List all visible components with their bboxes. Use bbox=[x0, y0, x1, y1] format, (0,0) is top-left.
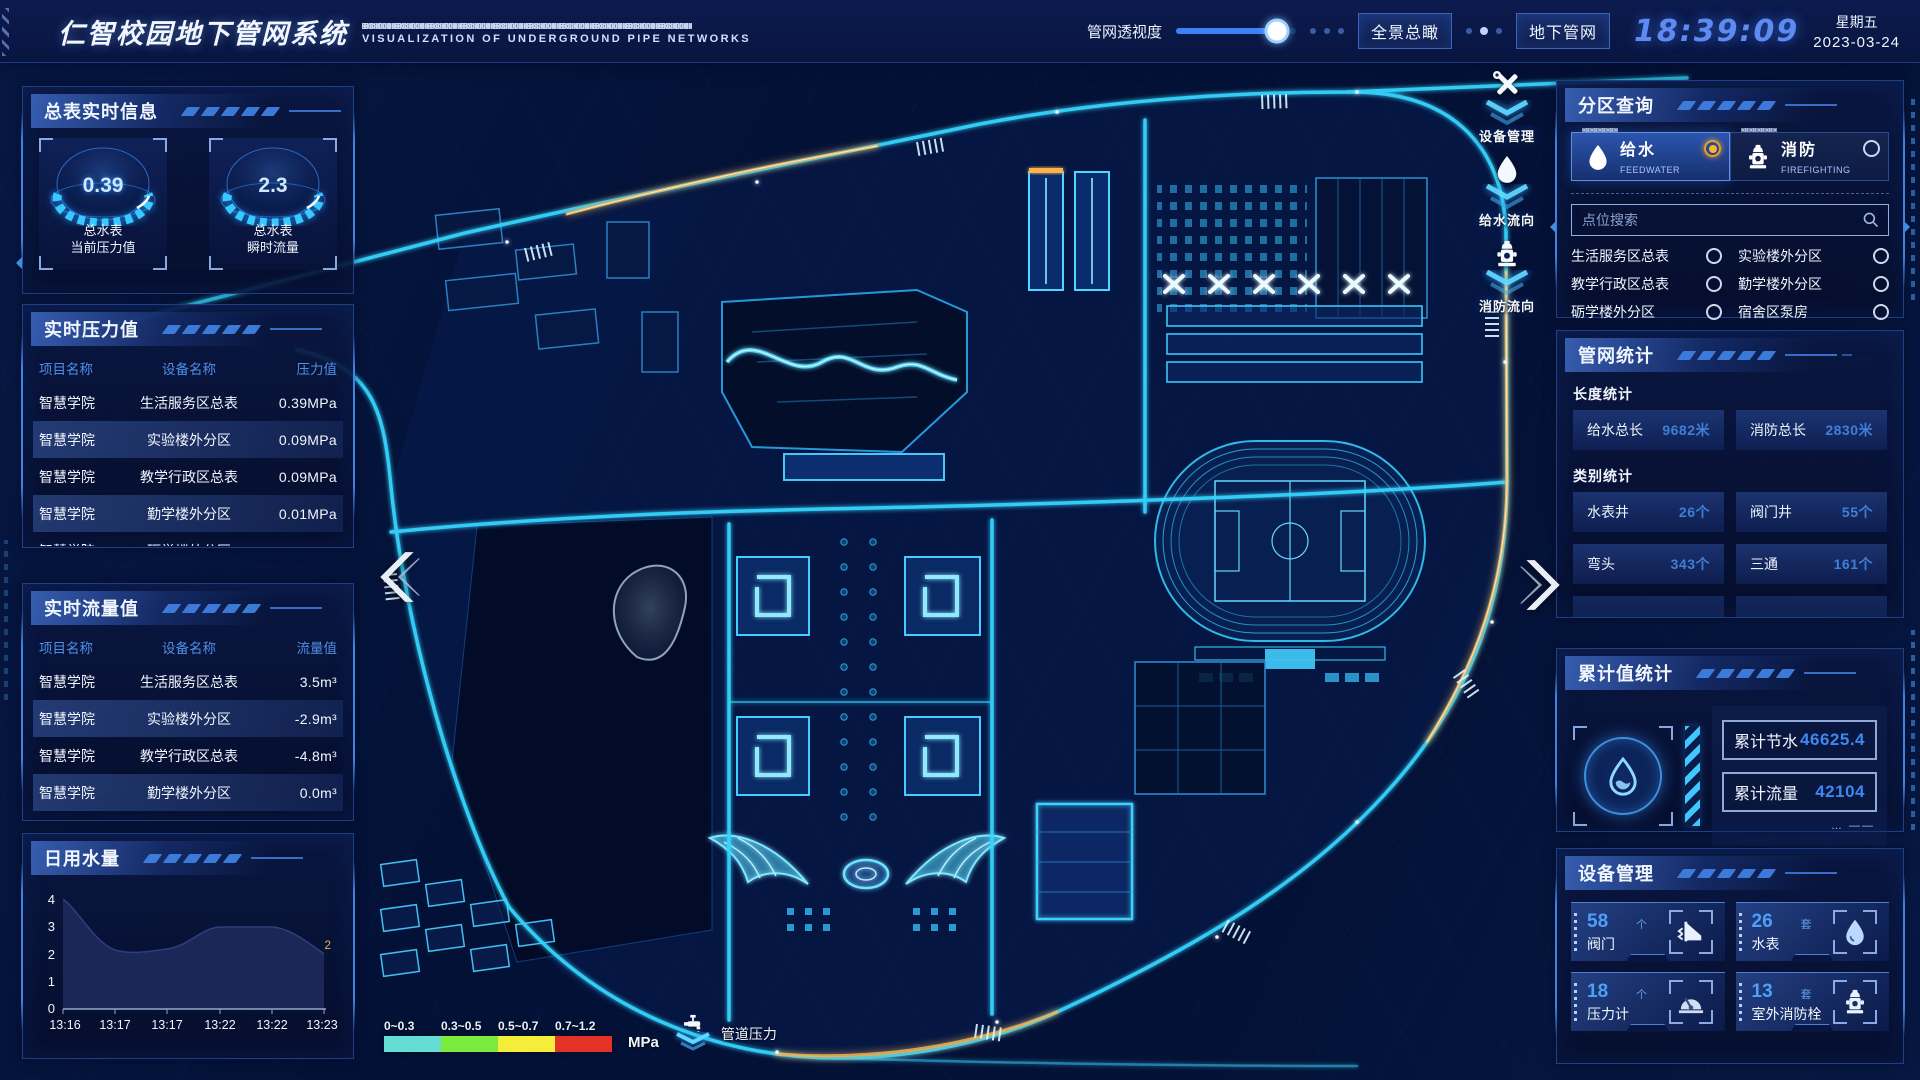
search-icon[interactable] bbox=[1862, 211, 1880, 229]
transparency-label: 管网透视度 bbox=[1087, 21, 1162, 42]
legend-unit: MPa bbox=[628, 1034, 659, 1051]
water-drop-icon bbox=[1606, 756, 1640, 796]
list-item[interactable]: 砺学楼外分区 bbox=[1571, 298, 1722, 320]
stat-box: 水表井26个 bbox=[1573, 492, 1724, 532]
tools-icon bbox=[1490, 70, 1524, 100]
app-subtitle: VISUALIZATION OF UNDERGROUND PIPE NETWOR… bbox=[362, 33, 751, 45]
daily-usage-panel: 日用水量 43 21 0 13:1613:17 13:1713:22 13:22… bbox=[22, 833, 354, 1059]
list-item[interactable]: 宿舍区泵房 bbox=[1738, 298, 1889, 320]
cumulative-stats-panel: 累计值统计 累计节水46625.4 累计流量42104 … —— bbox=[1556, 648, 1904, 832]
stat-box: 累计流量42104 bbox=[1722, 772, 1877, 812]
gauge-value: 0.39 bbox=[83, 174, 124, 197]
item-radio[interactable] bbox=[1873, 276, 1889, 292]
stat-box-clipped bbox=[1573, 596, 1724, 618]
pressure-table-panel: 实时压力值 项目名称设备名称压力值 智慧学院生活服务区总表0.39MPa 智慧学… bbox=[22, 304, 354, 548]
tab-feedwater[interactable]: 给水 FEEDWATER bbox=[1571, 132, 1730, 181]
table-header: 项目名称设备名称压力值 bbox=[33, 350, 343, 384]
edge-decoration bbox=[1911, 630, 1915, 830]
dots-decoration bbox=[1466, 27, 1502, 35]
item-radio[interactable] bbox=[1873, 304, 1889, 320]
edge-decoration bbox=[1911, 95, 1915, 300]
search-input[interactable] bbox=[1580, 211, 1862, 229]
tab-firefighting[interactable]: 消防 FIREFIGHTING bbox=[1730, 132, 1889, 181]
slider-thumb[interactable] bbox=[1264, 19, 1289, 44]
panel-title: 管网统计 bbox=[1565, 342, 1654, 368]
svg-text:1: 1 bbox=[48, 974, 55, 989]
table-row: 智慧学院实验楼外分区-2.9m³ bbox=[33, 700, 343, 737]
list-item[interactable]: 实验楼外分区 bbox=[1738, 242, 1889, 270]
chevron-down-icon bbox=[1481, 100, 1533, 126]
legend-range: 0.7~1.2 bbox=[555, 1019, 612, 1033]
hydrant-icon bbox=[1833, 980, 1877, 1024]
overlay-button-label: 设备管理 bbox=[1479, 126, 1535, 145]
legend-range: 0.3~0.5 bbox=[441, 1019, 498, 1033]
app-title: 仁智校园地下管网系统 bbox=[58, 12, 348, 51]
gauge-card-pressure: 0.39 总水表当前压力值 bbox=[39, 138, 167, 270]
water-drop-icon bbox=[1586, 143, 1610, 171]
header: 仁智校园地下管网系统 VISUALIZATION OF UNDERGROUND … bbox=[0, 0, 1920, 63]
clock-date: 2023-03-24 bbox=[1813, 34, 1900, 51]
item-radio[interactable] bbox=[1706, 248, 1722, 264]
chart-end-label: 2 bbox=[324, 938, 331, 952]
pressure-gauge-icon bbox=[1669, 980, 1713, 1024]
panel-title: 累计值统计 bbox=[1565, 660, 1673, 686]
stat-box: 三通161个 bbox=[1736, 544, 1887, 584]
feedwater-flow-button[interactable]: 给水流向 bbox=[1464, 154, 1550, 229]
tab-sublabel: FIREFIGHTING bbox=[1781, 165, 1851, 175]
dots-decoration: … —— bbox=[1831, 820, 1875, 832]
app-subtitle-block: VISUALIZATION OF UNDERGROUND PIPE NETWOR… bbox=[362, 23, 751, 45]
list-item[interactable]: 勤学楼外分区 bbox=[1738, 270, 1889, 298]
gauge-label: 总水表瞬时流量 bbox=[247, 222, 299, 256]
zone-list: 生活服务区总表 实验楼外分区 教学行政区总表 勤学楼外分区 砺学楼外分区 宿舍区… bbox=[1571, 242, 1889, 320]
table-row: 智慧学院生活服务区总表0.39MPa bbox=[33, 384, 343, 421]
stripe-divider bbox=[1685, 726, 1700, 826]
svg-text:4: 4 bbox=[48, 892, 55, 907]
meter-info-panel: 总表实时信息 0.39 总水表当前压力值 2.3 bbox=[22, 86, 354, 294]
table-row: 智慧学院教学行政区总表-4.8m³ bbox=[33, 737, 343, 774]
table-row: 智慧学院勤学楼外分区0.01MPa bbox=[33, 495, 343, 532]
clock: 18:39:09 星期五 2023-03-24 bbox=[1634, 12, 1900, 51]
svg-text:13:17: 13:17 bbox=[151, 1018, 182, 1032]
chevron-down-icon bbox=[1481, 270, 1533, 296]
table-row: 智慧学院教学行政区总表0.09MPa bbox=[33, 458, 343, 495]
clock-time: 18:39:09 bbox=[1634, 14, 1799, 49]
map-overlay-buttons: 设备管理 给水流向 消防流向 bbox=[1464, 70, 1550, 315]
svg-text:13:16: 13:16 bbox=[49, 1018, 80, 1032]
legend-range: 0.5~0.7 bbox=[498, 1019, 555, 1033]
underground-pipes-button[interactable]: 地下管网 bbox=[1516, 13, 1610, 49]
legend-range: 0~0.3 bbox=[384, 1019, 441, 1033]
panel-title: 实时压力值 bbox=[31, 316, 139, 342]
water-saving-icon-card bbox=[1573, 726, 1673, 826]
section-label: 类别统计 bbox=[1573, 466, 1887, 486]
table-row: 智慧学院勤学楼外分区0.0m³ bbox=[33, 774, 343, 811]
flow-table-panel: 实时流量值 项目名称设备名称流量值 智慧学院生活服务区总表3.5m³ 智慧学院实… bbox=[22, 583, 354, 821]
edge-decoration bbox=[4, 540, 8, 700]
overview-button[interactable]: 全景总瞰 bbox=[1358, 13, 1452, 49]
tab-radio[interactable] bbox=[1704, 140, 1721, 157]
tab-radio[interactable] bbox=[1863, 140, 1880, 157]
faucet-icon bbox=[682, 1014, 704, 1032]
gauge-label: 总水表当前压力值 bbox=[70, 222, 135, 256]
water-drop-icon bbox=[1494, 154, 1520, 184]
map-prev-arrow[interactable] bbox=[372, 548, 420, 606]
network-stats-panel: 管网统计 长度统计 给水总长9682米 消防总长2830米 类别统计 水表井26… bbox=[1556, 330, 1904, 618]
transparency-slider[interactable] bbox=[1176, 28, 1296, 34]
section-label: 长度统计 bbox=[1573, 384, 1887, 404]
svg-text:13:22: 13:22 bbox=[256, 1018, 287, 1032]
table-row: 智慧学院实验楼外分区0.09MPa bbox=[33, 421, 343, 458]
water-drop-icon bbox=[1833, 910, 1877, 954]
chevron-down-icon bbox=[1481, 184, 1533, 210]
svg-text:3: 3 bbox=[48, 919, 55, 934]
table-row: 智慧学院生活服务区总表3.5m³ bbox=[33, 663, 343, 700]
daily-usage-chart: 43 21 0 13:1613:17 13:1713:22 13:2213:23… bbox=[29, 881, 341, 1043]
legend-pressure-label: 管道压力 bbox=[721, 1024, 777, 1044]
svg-text:13:17: 13:17 bbox=[99, 1018, 130, 1032]
device-card-hydrants: 13室外消防栓 套 bbox=[1736, 972, 1890, 1031]
item-radio[interactable] bbox=[1873, 248, 1889, 264]
device-manage-map-button[interactable]: 设备管理 bbox=[1464, 70, 1550, 145]
hydrant-icon bbox=[1745, 143, 1771, 171]
header-hazard-decoration bbox=[2, 8, 9, 56]
panel-title: 总表实时信息 bbox=[31, 98, 158, 124]
table-row: 智慧学院砺学楼外分区2.3m³ bbox=[33, 811, 343, 819]
svg-text:2: 2 bbox=[48, 947, 55, 962]
table-header: 项目名称设备名称流量值 bbox=[33, 629, 343, 663]
pressure-legend: 0~0.3 0.3~0.5 0.5~0.7 0.7~1.2 MPa 管道压力 bbox=[384, 1014, 777, 1052]
stat-box-clipped bbox=[1736, 596, 1887, 618]
panel-title: 设备管理 bbox=[1565, 860, 1654, 886]
tab-sublabel: FEEDWATER bbox=[1620, 165, 1680, 175]
dots-decoration bbox=[1310, 28, 1344, 34]
device-card-pressure-gauges: 18压力计 个 bbox=[1571, 972, 1725, 1031]
svg-text:0: 0 bbox=[48, 1001, 55, 1016]
valve-icon bbox=[1669, 910, 1713, 954]
clock-weekday: 星期五 bbox=[1836, 12, 1878, 32]
zone-query-panel: 分区查询 给水 FEEDWATER 消防 FIREFIGHTING 生活服务区总… bbox=[1556, 80, 1904, 318]
overlay-button-label: 给水流向 bbox=[1479, 210, 1535, 229]
stat-box: 给水总长9682米 bbox=[1573, 410, 1724, 450]
gauge-value: 2.3 bbox=[258, 174, 287, 197]
svg-text:13:23: 13:23 bbox=[306, 1018, 337, 1032]
item-radio[interactable] bbox=[1706, 304, 1722, 320]
stat-box: 弯头343个 bbox=[1573, 544, 1724, 584]
gauge-card-flow: 2.3 总水表瞬时流量 bbox=[209, 138, 337, 270]
hydrant-icon bbox=[1493, 238, 1521, 270]
fire-flow-button[interactable]: 消防流向 bbox=[1464, 238, 1550, 315]
table-body: 智慧学院生活服务区总表0.39MPa 智慧学院实验楼外分区0.09MPa 智慧学… bbox=[33, 384, 343, 546]
stat-box: 阀门井55个 bbox=[1736, 492, 1887, 532]
overlay-button-label: 消防流向 bbox=[1479, 296, 1535, 315]
item-radio[interactable] bbox=[1706, 276, 1722, 292]
table-body: 智慧学院生活服务区总表3.5m³ 智慧学院实验楼外分区-2.9m³ 智慧学院教学… bbox=[33, 663, 343, 819]
svg-text:13:22: 13:22 bbox=[204, 1018, 235, 1032]
stat-box: 累计节水46625.4 bbox=[1722, 720, 1877, 760]
dots-decoration bbox=[362, 23, 692, 29]
device-card-water-meters: 26水表 套 bbox=[1736, 902, 1890, 961]
panel-title: 日用水量 bbox=[31, 845, 120, 871]
stat-box: 消防总长2830米 bbox=[1736, 410, 1887, 450]
panel-title: 实时流量值 bbox=[31, 595, 139, 621]
search-box bbox=[1571, 204, 1889, 236]
tab-label: 消防 bbox=[1781, 142, 1817, 159]
tab-label: 给水 bbox=[1620, 142, 1656, 159]
legend-scale: 0~0.3 0.3~0.5 0.5~0.7 0.7~1.2 bbox=[384, 1019, 612, 1052]
dashboard: 设备管理 给水流向 消防流向 0~0.3 0.3~0.5 bbox=[0, 0, 1920, 1080]
legend-colorbar bbox=[384, 1036, 612, 1052]
map-next-arrow[interactable] bbox=[1520, 556, 1568, 614]
table-row: 智慧学院砺学楼外分区0.00MPa bbox=[33, 532, 343, 546]
list-item[interactable]: 教学行政区总表 bbox=[1571, 270, 1722, 298]
device-card-valves: 58阀门 个 bbox=[1571, 902, 1725, 961]
chevron-down-icon bbox=[673, 1032, 713, 1052]
list-item[interactable]: 生活服务区总表 bbox=[1571, 242, 1722, 270]
panel-title: 分区查询 bbox=[1565, 92, 1654, 118]
device-management-panel: 设备管理 58阀门 个 26水表 套 18压力计 个 13室外消防栓 bbox=[1556, 848, 1904, 1064]
